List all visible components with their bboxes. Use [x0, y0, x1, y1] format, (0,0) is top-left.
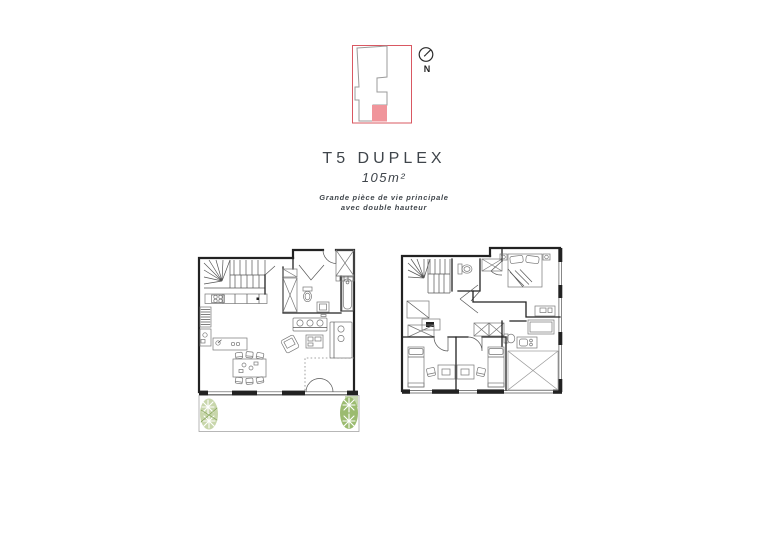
bathroom: [283, 265, 354, 317]
skylight: [407, 301, 429, 318]
double-bed: [500, 254, 550, 287]
armchair: [281, 335, 300, 354]
french-doors: [306, 379, 333, 393]
building-key-plan: [350, 43, 416, 127]
interior-walls: [265, 258, 354, 313]
bathroom-sink: [517, 337, 537, 348]
terrace: [199, 396, 359, 432]
north-label: N: [414, 64, 440, 74]
desk: [213, 338, 247, 350]
closet: [474, 323, 504, 336]
floor-plan-ground: [194, 245, 364, 435]
bedrooms: [402, 337, 506, 391]
floor-plan-upper: [398, 241, 570, 403]
plan-title: T5 DUPLEX: [0, 150, 768, 168]
bathroom: [502, 320, 554, 349]
bathtub: [342, 277, 353, 311]
shower: [528, 320, 554, 334]
staircase: [204, 260, 265, 288]
subtitle-line-1: Grande pièce de vie principale: [0, 193, 768, 203]
living-room: [281, 318, 354, 392]
closet: [482, 259, 502, 271]
single-bed: [488, 347, 504, 387]
plant: [340, 397, 358, 429]
plan-subtitle: Grande pièce de vie principale avec doub…: [0, 193, 768, 213]
bathroom-sink: [317, 302, 329, 317]
dining-table: [233, 352, 266, 385]
desk: [535, 306, 555, 316]
subtitle-line-2: avec double hauteur: [0, 203, 768, 213]
coffee-table: [306, 335, 323, 348]
closet: [283, 278, 297, 312]
staircase: [408, 259, 450, 293]
toilet: [303, 287, 312, 302]
compass-icon: [414, 44, 440, 66]
plan-area: 105m²: [0, 170, 768, 185]
closet: [408, 325, 434, 337]
closet: [336, 250, 354, 276]
void-double-height: [508, 351, 558, 390]
page: N T5 DUPLEX 105m² Grande pièce de vie pr…: [0, 0, 768, 543]
single-bed: [408, 347, 424, 387]
plant: [200, 399, 218, 430]
unit-highlight: [372, 105, 387, 122]
window-band: [199, 391, 358, 396]
hall-doors: [460, 285, 478, 313]
shelf: [422, 319, 440, 330]
entry-door: [323, 250, 336, 264]
master-bedroom: [473, 248, 560, 317]
